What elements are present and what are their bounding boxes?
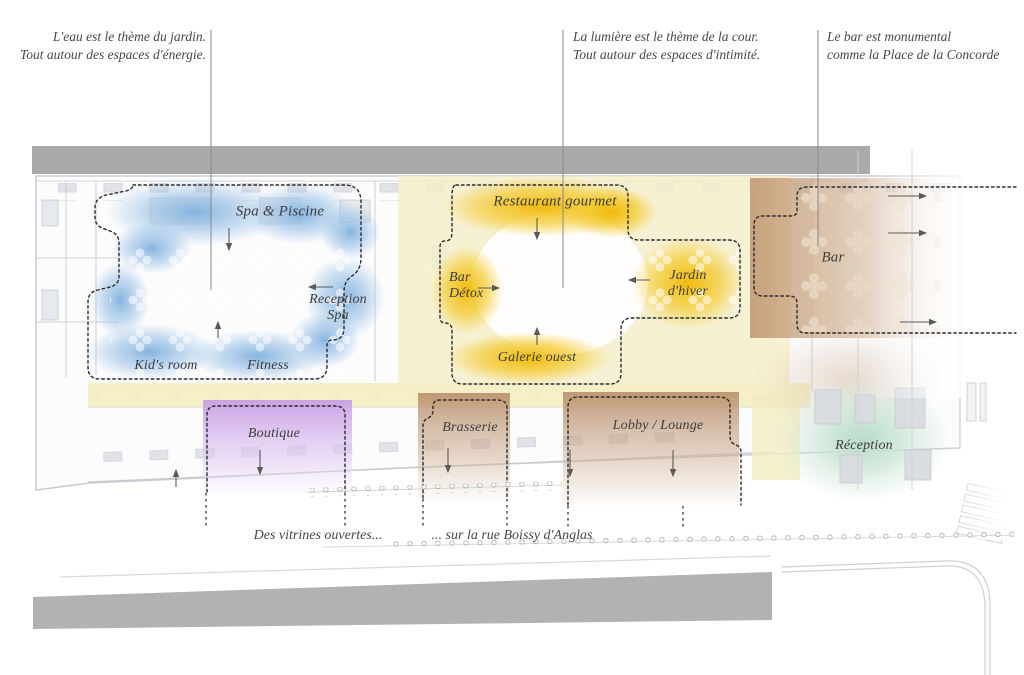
zone-label-reception: Réception [835, 438, 893, 454]
fade-overlay [865, 140, 1024, 398]
annotation-court: La lumière est le thème de la cour. Tout… [573, 28, 760, 64]
zone-label-reception-spa: Reception Spa [309, 292, 367, 324]
floor-plan-svg [0, 0, 1024, 675]
lobby-zone [563, 392, 739, 508]
zone-label-bar-detox: Bar Détox [449, 270, 483, 302]
annotation-garden: L'eau est le thème du jardin. Tout autou… [20, 28, 206, 64]
zone-label-fitness: Fitness [247, 358, 289, 374]
zone-label-spa-piscine: Spa & Piscine [236, 203, 324, 220]
zone-label-brasserie: Brasserie [442, 420, 497, 436]
annotation-court-line1: La lumière est le thème de la cour. [573, 28, 760, 46]
annotation-bar: Le bar est monumental comme la Place de … [827, 28, 999, 64]
boutique-zone [203, 400, 352, 493]
annotation-bar-line1: Le bar est monumental [827, 28, 999, 46]
zone-label-boutique: Boutique [248, 426, 300, 442]
zone-label-galerie-ouest: Galerie ouest [498, 350, 576, 366]
annotation-garden-line2: Tout autour des espaces d'énergie. [20, 46, 206, 64]
street-band-top [32, 146, 870, 174]
zone-label-bar: Bar [821, 249, 844, 266]
hotel-floor-plan: L'eau est le thème du jardin. Tout autou… [0, 0, 1024, 675]
annotation-court-line2: Tout autour des espaces d'intimité. [573, 46, 760, 64]
annotation-bar-line2: comme la Place de la Concorde [827, 46, 999, 64]
zone-label-restaurant-gourmet: Restaurant gourmet [493, 193, 616, 210]
caption-vitrines: Des vitrines ouvertes... [254, 528, 383, 544]
caption-rue: ... sur la rue Boissy d'Anglas [432, 528, 593, 544]
zone-label-lobby-lounge: Lobby / Lounge [613, 418, 704, 434]
zone-label-kids-room: Kid's room [134, 358, 197, 374]
fade-overlay-low [950, 395, 1024, 540]
annotation-garden-line1: L'eau est le thème du jardin. [20, 28, 206, 46]
street-band-bottom [33, 572, 772, 629]
zone-label-jardin-hiver: Jardin d'hiver [668, 268, 708, 300]
